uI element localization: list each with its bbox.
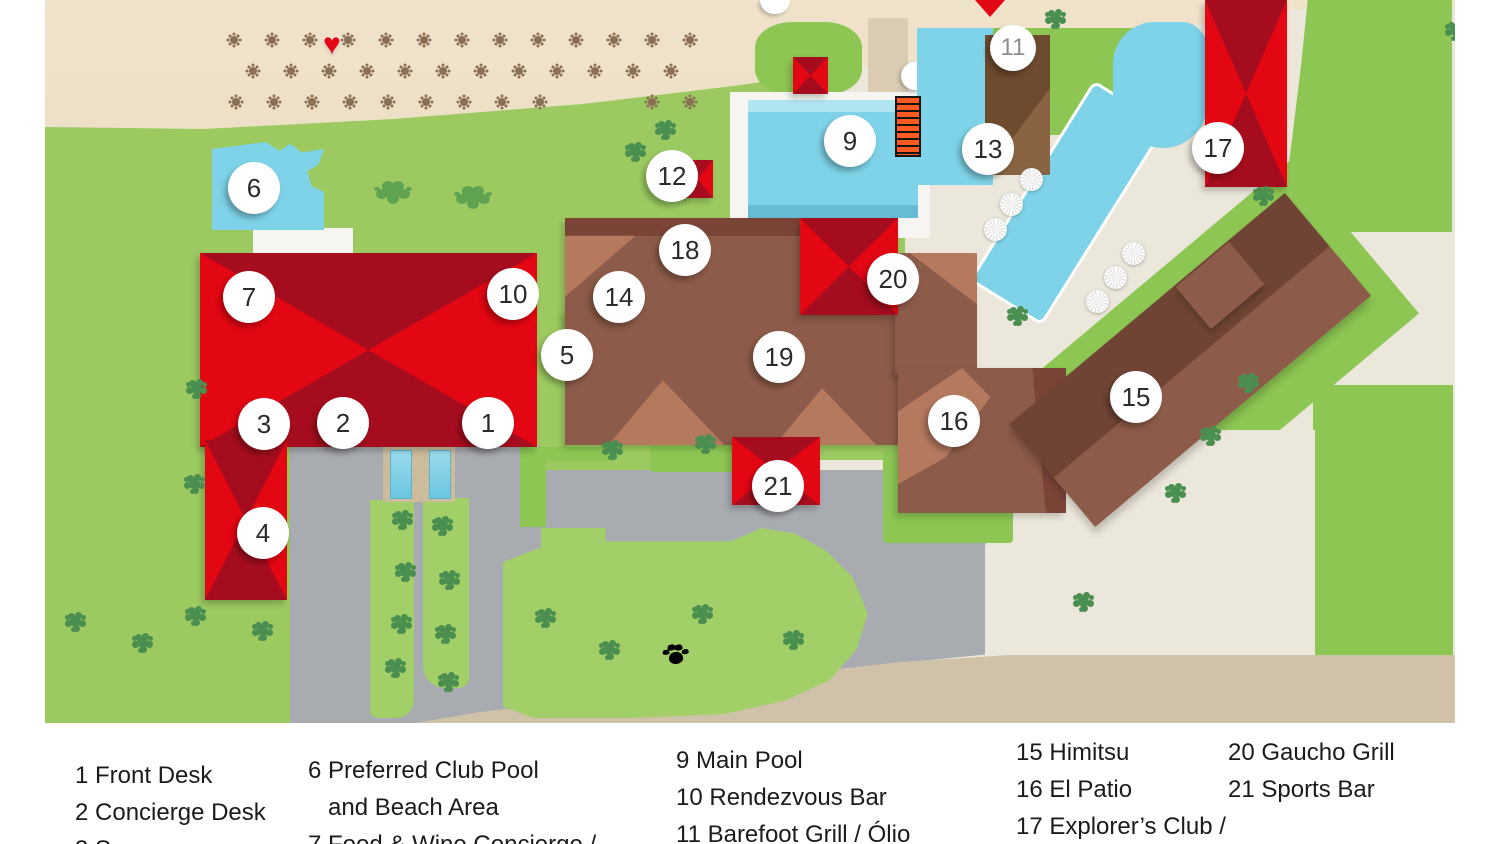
map-marker-9: 9	[824, 115, 876, 167]
legend-column-3: 9 Main Pool10 Rendezvous Bar11 Barefoot …	[676, 742, 910, 844]
palm-tree-icon	[629, 67, 637, 75]
kidney-pool	[1113, 22, 1210, 148]
tree-icon	[257, 625, 268, 636]
tree-icon	[396, 618, 407, 629]
umbrella-icon	[1020, 168, 1043, 191]
map-marker-15: 15	[1110, 371, 1162, 423]
palm-tree-icon	[648, 36, 656, 44]
palm-tree-icon	[268, 36, 276, 44]
tree-icon	[1450, 25, 1455, 36]
tree-icon	[788, 634, 799, 645]
restaurant-complex-main	[565, 310, 927, 445]
palm-tree-icon	[515, 67, 523, 75]
tree-icon	[440, 628, 451, 639]
tree-icon	[697, 608, 708, 619]
palm-tree-icon	[382, 36, 390, 44]
palm-tree-icon	[401, 67, 409, 75]
palm-tree-icon	[496, 36, 504, 44]
tree-icon	[70, 616, 81, 627]
palm-tree-icon	[439, 67, 447, 75]
legend-entry: and Beach Area	[308, 789, 596, 826]
legend-column-5: 20 Gaucho Grill21 Sports Bar	[1228, 734, 1395, 808]
palm-tree-icon	[460, 98, 468, 106]
tree-icon	[444, 574, 455, 585]
map-marker-12: 12	[646, 150, 698, 202]
palm-tree-icon	[591, 67, 599, 75]
palm-tree-icon	[270, 98, 278, 106]
map-marker-13: 13	[962, 123, 1014, 175]
map-marker-2: 2	[317, 397, 369, 449]
bush-icon	[385, 185, 401, 199]
preferred-pool-deck	[253, 228, 353, 254]
path-to-grill	[868, 18, 908, 96]
map-marker-4: 4	[237, 507, 289, 559]
tree-icon	[607, 444, 618, 455]
palm-tree-icon	[287, 67, 295, 75]
palm-tree-icon	[534, 36, 542, 44]
tree-icon	[700, 438, 711, 449]
map-marker-20: 20	[867, 253, 919, 305]
palm-tree-icon	[306, 36, 314, 44]
tree-icon	[443, 676, 454, 687]
palm-tree-icon	[686, 98, 694, 106]
palm-tree-icon	[458, 36, 466, 44]
map-marker-6: 6	[228, 162, 280, 214]
fountain-left	[390, 450, 412, 499]
tree-icon	[1243, 377, 1254, 388]
palm-tree-icon	[686, 36, 694, 44]
legend-column-1: 1 Front Desk2 Concierge Desk3 Spa	[75, 757, 266, 844]
legend-entry: 6 Preferred Club Pool	[308, 752, 596, 789]
bush-icon	[465, 190, 481, 204]
legend-column-4: 15 Himitsu16 El Patio17 Explorer’s Club …	[1016, 734, 1226, 844]
pool-bridge	[895, 96, 921, 157]
umbrella-icon	[1000, 193, 1023, 216]
map-marker-14: 14	[593, 271, 645, 323]
resort-map-image: ♥ 12345679101112131415161718192021 1 Fro…	[0, 0, 1500, 844]
tree-icon	[1258, 190, 1269, 201]
tree-icon	[1078, 596, 1089, 607]
palm-tree-icon	[346, 98, 354, 106]
legend-entry: 1 Front Desk	[75, 757, 266, 794]
map-marker-21: 21	[752, 460, 804, 512]
tree-icon	[1012, 310, 1023, 321]
tree-icon	[437, 520, 448, 531]
palm-tree-icon	[667, 67, 675, 75]
tree-icon	[540, 612, 551, 623]
tree-icon	[191, 383, 202, 394]
lawn-right-strip	[1313, 385, 1453, 655]
tree-icon	[604, 644, 615, 655]
map-canvas: ♥ 12345679101112131415161718192021	[45, 0, 1455, 723]
palm-tree-icon	[420, 36, 428, 44]
legend-column-2: 6 Preferred Club Pool and Beach Area7 Fo…	[308, 752, 596, 844]
legend-entry: 9 Main Pool	[676, 742, 910, 779]
tree-icon	[660, 124, 671, 135]
fountain-right	[429, 450, 451, 499]
legend-entry: 20 Gaucho Grill	[1228, 734, 1395, 771]
palm-tree-icon	[325, 67, 333, 75]
entrance-median-left	[370, 500, 414, 718]
palm-tree-icon	[610, 36, 618, 44]
legend-entry: 17 Explorer’s Club /	[1016, 808, 1226, 844]
palm-tree-icon	[384, 98, 392, 106]
umbrella-icon	[1086, 290, 1109, 313]
legend-entry: 10 Rendezvous Bar	[676, 779, 910, 816]
tree-icon	[1205, 430, 1216, 441]
palm-tree-icon	[553, 67, 561, 75]
map-marker-1: 1	[462, 397, 514, 449]
legend-entry: 11 Barefoot Grill / Ólio	[676, 816, 910, 844]
legend-entry: 2 Concierge Desk	[75, 794, 266, 831]
palm-tree-icon	[477, 67, 485, 75]
map-marker-5: 5	[541, 329, 593, 381]
map-marker-7: 7	[223, 271, 275, 323]
pool-pavilion	[793, 57, 828, 94]
legend-entry: 15 Himitsu	[1016, 734, 1226, 771]
umbrella-icon	[1104, 266, 1127, 289]
tree-icon	[1050, 13, 1061, 24]
tree-icon	[189, 478, 200, 489]
legend-entry: 16 El Patio	[1016, 771, 1226, 808]
map-marker-11: 11	[990, 25, 1036, 71]
garden-strip-b	[520, 447, 615, 461]
palm-tree-icon	[422, 98, 430, 106]
map-marker-17: 17	[1192, 122, 1244, 174]
palm-tree-icon	[536, 98, 544, 106]
map-marker-18: 18	[659, 224, 711, 276]
palm-tree-icon	[363, 67, 371, 75]
palm-tree-icon	[344, 36, 352, 44]
umbrella-icon	[1122, 242, 1145, 265]
palm-tree-icon	[230, 36, 238, 44]
tree-icon	[390, 662, 401, 673]
umbrella-icon	[984, 218, 1007, 241]
palm-tree-icon	[648, 98, 656, 106]
heart-icon: ♥	[323, 30, 341, 60]
tree-icon	[397, 514, 408, 525]
palm-tree-icon	[498, 98, 506, 106]
map-marker-10: 10	[487, 268, 539, 320]
palm-tree-icon	[249, 67, 257, 75]
tree-icon	[630, 146, 641, 157]
palm-tree-icon	[572, 36, 580, 44]
palm-tree-icon	[308, 98, 316, 106]
legend-entry: 3 Spa	[75, 831, 266, 844]
map-marker-3: 3	[238, 398, 290, 450]
map-marker-19: 19	[753, 331, 805, 383]
legend-entry: 7 Food & Wine Concierge /	[308, 826, 596, 844]
palm-tree-icon	[232, 98, 240, 106]
tree-icon	[190, 610, 201, 621]
tree-icon	[137, 637, 148, 648]
tree-icon	[1170, 487, 1181, 498]
tree-icon	[400, 566, 411, 577]
map-marker-16: 16	[928, 395, 980, 447]
legend-entry: 21 Sports Bar	[1228, 771, 1395, 808]
